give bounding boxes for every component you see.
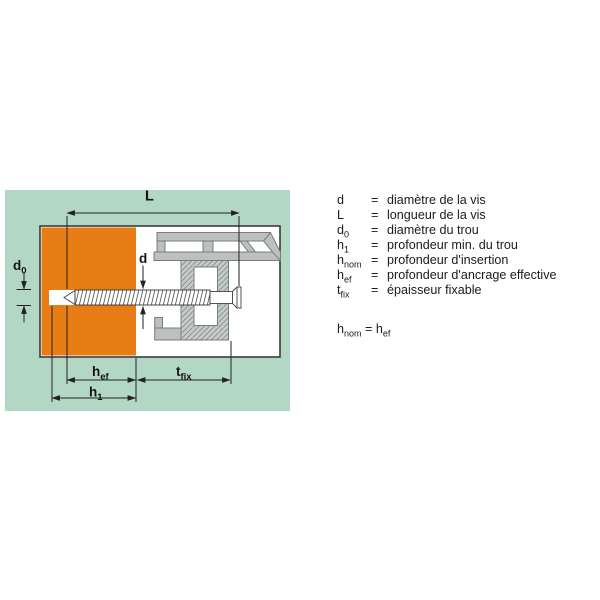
legend-description: longueur de la vis — [387, 208, 587, 223]
legend-row: tfix = épaisseur fixable — [337, 283, 587, 298]
legend-symbol: d0 — [337, 223, 371, 238]
legend-equals: = — [371, 193, 387, 208]
legend-symbol: d — [337, 193, 371, 208]
legend-description: profondeur d'ancrage effective — [387, 268, 587, 283]
legend-equals: = — [371, 238, 387, 253]
label-d: d — [139, 251, 147, 266]
profile-bottom-tab — [155, 318, 163, 329]
legend-equals: = — [371, 208, 387, 223]
legend-note-hnom-equals-hef: hnom = hef — [337, 322, 390, 336]
legend: d = diamètre de la vis L = longueur de l… — [337, 193, 587, 298]
profile-flange — [154, 252, 280, 261]
legend-symbol: tfix — [337, 283, 371, 298]
legend-row: h1 = profondeur min. du trou — [337, 238, 587, 253]
legend-symbol: hef — [337, 268, 371, 283]
profile-bottom-bar — [155, 328, 181, 340]
legend-symbol: hnom — [337, 253, 371, 268]
legend-equals: = — [371, 253, 387, 268]
legend-equals: = — [371, 268, 387, 283]
legend-row: d0 = diamètre du trou — [337, 223, 587, 238]
legend-description: diamètre de la vis — [387, 193, 587, 208]
legend-row: hnom = profondeur d'insertion — [337, 253, 587, 268]
legend-symbol: h1 — [337, 238, 371, 253]
legend-row: hef = profondeur d'ancrage effective — [337, 268, 587, 283]
screenshot-root: L d0 d hef h1 tfix d = diamètre de la vi… — [0, 0, 600, 600]
legend-row: L = longueur de la vis — [337, 208, 587, 223]
legend-description: profondeur d'insertion — [387, 253, 587, 268]
screw-shank — [210, 292, 233, 304]
legend-description: épaisseur fixable — [387, 283, 587, 298]
legend-row: d = diamètre de la vis — [337, 193, 587, 208]
profile-left-tab — [157, 241, 165, 252]
profile-top-rail — [157, 233, 270, 242]
anchor-installation-diagram: L d0 d hef h1 tfix — [0, 0, 600, 600]
profile-center-web — [203, 241, 213, 252]
legend-equals: = — [371, 283, 387, 298]
legend-description: diamètre du trou — [387, 223, 587, 238]
legend-description: profondeur min. du trou — [387, 238, 587, 253]
label-L: L — [145, 189, 154, 205]
legend-symbol: L — [337, 208, 371, 223]
legend-equals: = — [371, 223, 387, 238]
